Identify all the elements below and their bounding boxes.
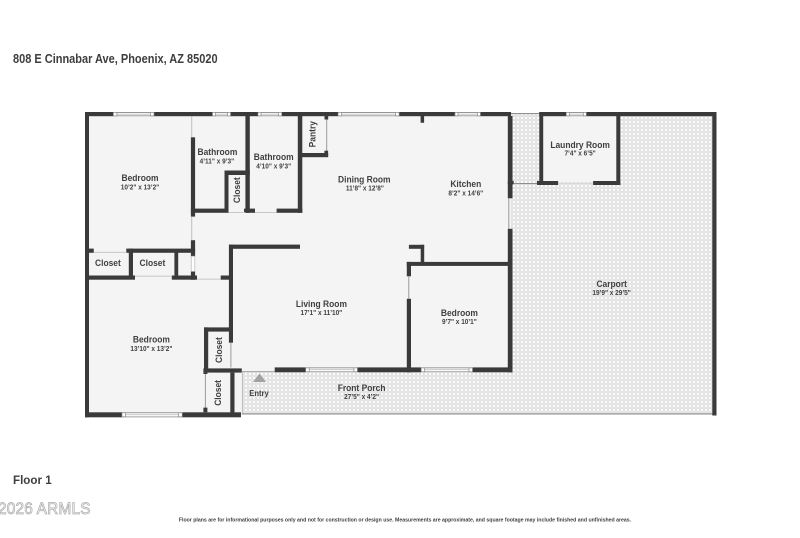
svg-text:17’1" x 11’10": 17’1" x 11’10" [301, 310, 343, 317]
svg-text:4’10" x 9’3": 4’10" x 9’3" [256, 163, 291, 170]
svg-text:Bedroom: Bedroom [133, 334, 170, 345]
svg-text:Bedroom: Bedroom [121, 172, 158, 183]
svg-text:4’11" x 9’3": 4’11" x 9’3" [200, 158, 235, 165]
svg-text:Kitchen: Kitchen [450, 179, 481, 190]
svg-text:Closet: Closet [95, 258, 121, 269]
svg-text:Floor 1: Floor 1 [13, 474, 52, 487]
svg-text:Bedroom: Bedroom [441, 308, 478, 319]
svg-text:11’8" x 12’8": 11’8" x 12’8" [346, 185, 384, 192]
svg-text:8’2" x 14’6": 8’2" x 14’6" [448, 190, 483, 197]
svg-text:Closet: Closet [212, 380, 223, 406]
svg-text:19’9" x 29’5": 19’9" x 29’5" [592, 290, 630, 297]
svg-text:7’4" x 6’5": 7’4" x 6’5" [564, 150, 595, 157]
svg-text:9’7" x 10’1": 9’7" x 10’1" [442, 319, 477, 326]
svg-text:Entry: Entry [249, 389, 269, 398]
svg-text:Bathroom: Bathroom [197, 147, 237, 158]
svg-text:13’10" x 13’2": 13’10" x 13’2" [130, 346, 172, 353]
svg-text:808 E Cinnabar Ave, Phoenix, A: 808 E Cinnabar Ave, Phoenix, AZ 85020 [13, 51, 218, 66]
svg-text:Pantry: Pantry [307, 121, 318, 147]
svg-text:2026 ARMLS: 2026 ARMLS [0, 500, 91, 519]
svg-text:Closet: Closet [213, 337, 224, 363]
svg-text:27’5" x 4’2": 27’5" x 4’2" [344, 394, 379, 401]
svg-text:Carport: Carport [596, 279, 626, 290]
svg-text:Living Room: Living Room [296, 298, 347, 309]
svg-text:Closet: Closet [140, 258, 166, 269]
svg-text:Bathroom: Bathroom [254, 152, 294, 163]
svg-text:Floor plans are for informatio: Floor plans are for informational purpos… [179, 518, 632, 524]
svg-text:Laundry Room: Laundry Room [550, 140, 610, 151]
svg-text:10’2" x 13’2": 10’2" x 13’2" [121, 184, 159, 191]
svg-text:Closet: Closet [232, 177, 243, 203]
svg-text:Dining Room: Dining Room [338, 174, 390, 185]
svg-text:Front Porch: Front Porch [338, 383, 386, 394]
